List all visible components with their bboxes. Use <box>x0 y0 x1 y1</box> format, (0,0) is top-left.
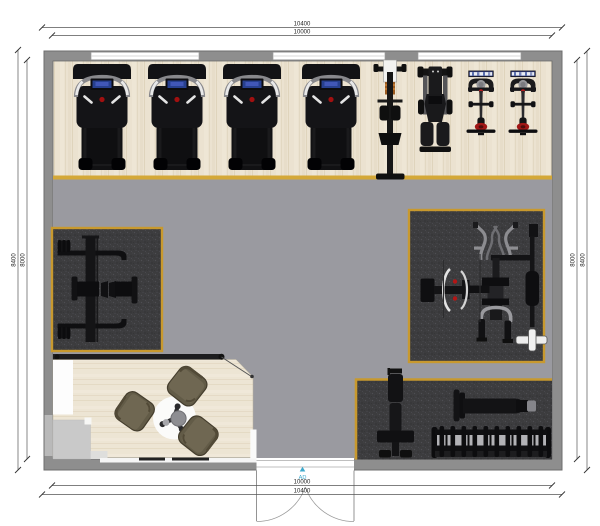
svg-text:10000: 10000 <box>294 480 311 486</box>
svg-text:8000: 8000 <box>571 253 577 267</box>
svg-text:8400: 8400 <box>12 253 18 267</box>
svg-text:8000: 8000 <box>21 253 27 267</box>
svg-text:10000: 10000 <box>294 30 311 36</box>
svg-text:8400: 8400 <box>581 253 587 267</box>
svg-text:10400: 10400 <box>294 489 311 495</box>
svg-text:10400: 10400 <box>294 22 311 28</box>
